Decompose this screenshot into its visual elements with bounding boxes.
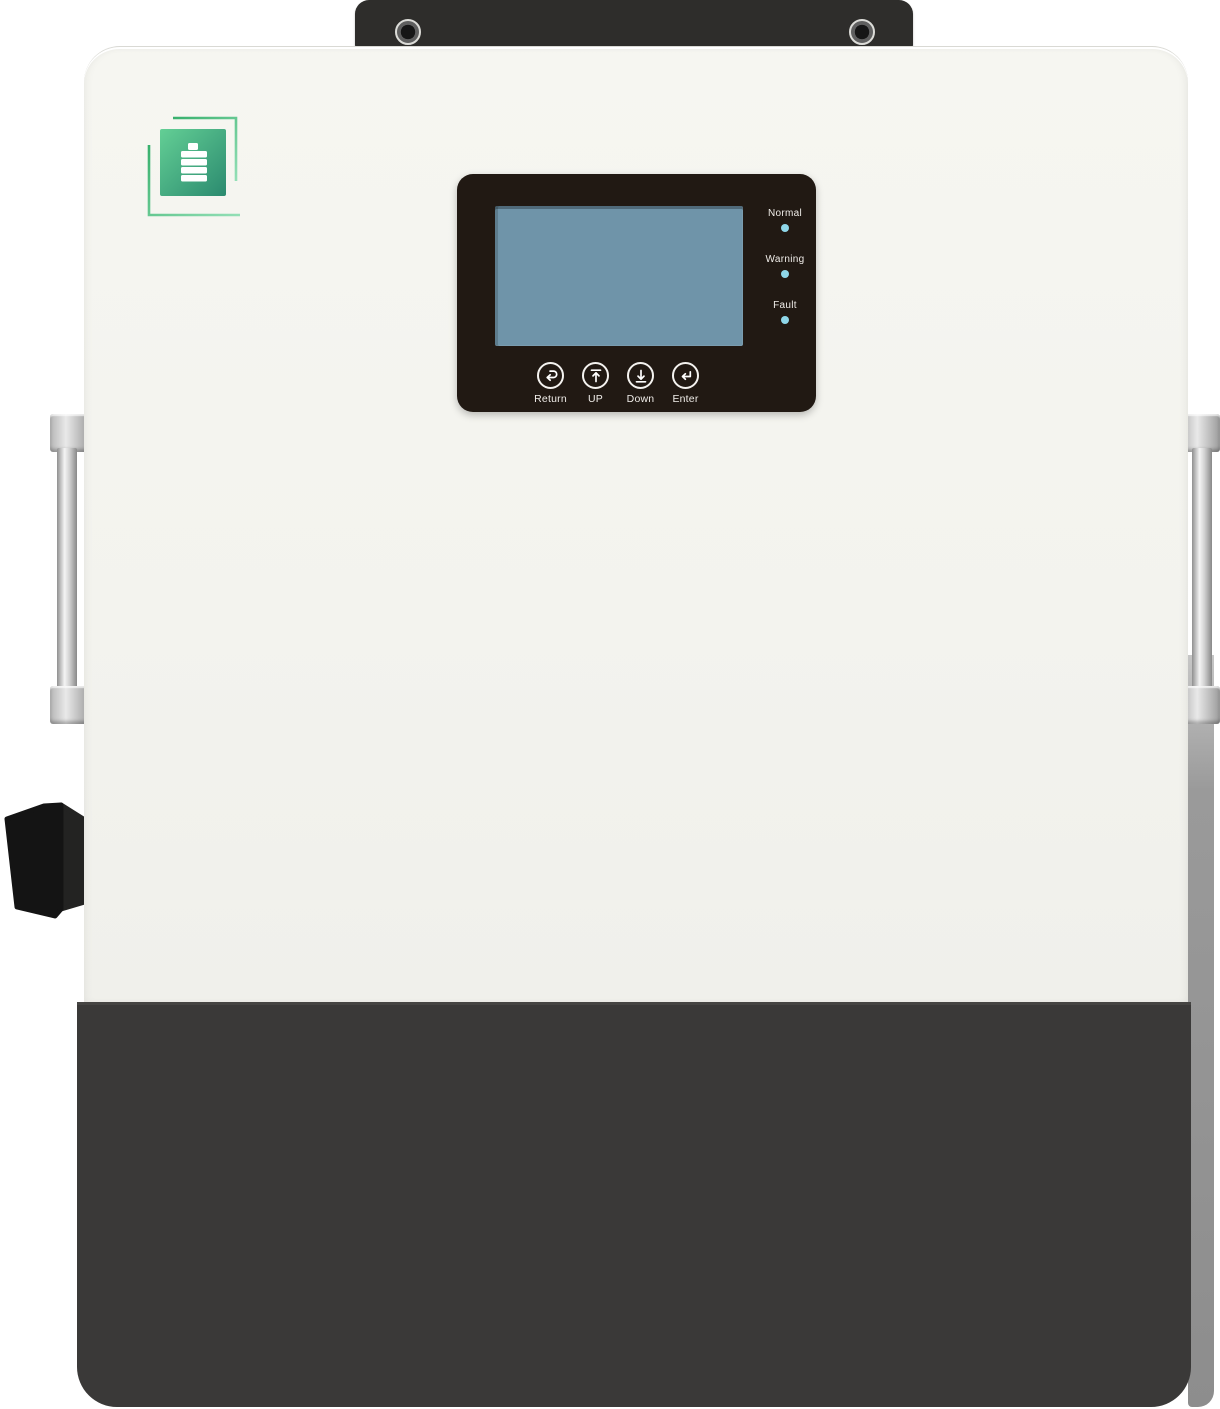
control-panel: Normal Warning Fault Return [457,174,816,412]
mount-hole-left [395,19,421,45]
down-button-label: Down [627,393,655,405]
down-arrow-icon [633,368,649,384]
up-button[interactable]: UP [573,362,618,405]
wall-mount-bracket [355,0,913,48]
handle-grip-bar [1192,448,1212,692]
side-breaker-switch [0,795,92,927]
enter-arrow-icon [678,368,694,384]
enter-button-label: Enter [672,393,698,405]
enter-button-circle [672,362,699,389]
return-button-circle [537,362,564,389]
lower-cabinet [77,1002,1191,1407]
enter-button[interactable]: Enter [663,362,708,405]
led-fault: Fault [753,300,817,324]
mount-hole-right [849,19,875,45]
brand-logo [130,98,260,228]
led-warning-indicator [781,270,789,278]
up-button-circle [582,362,609,389]
led-warning: Warning [753,254,817,278]
led-normal-indicator [781,224,789,232]
led-normal-label: Normal [753,208,817,220]
return-arrow-icon [543,368,559,384]
led-fault-label: Fault [753,300,817,312]
product-image-battery-inverter: Normal Warning Fault Return [0,0,1220,1409]
status-led-column: Normal Warning Fault [753,174,817,412]
led-warning-label: Warning [753,254,817,266]
return-button-label: Return [534,393,567,405]
up-arrow-icon [588,368,604,384]
down-button[interactable]: Down [618,362,663,405]
led-fault-indicator [781,316,789,324]
cabinet-side-panel [1188,655,1214,1407]
handle-grip-bar [57,448,77,692]
up-button-label: UP [588,393,603,405]
panel-button-row: Return UP [528,362,708,405]
down-button-circle [627,362,654,389]
lcd-screen [495,206,743,346]
return-button[interactable]: Return [528,362,573,405]
led-normal: Normal [753,208,817,232]
